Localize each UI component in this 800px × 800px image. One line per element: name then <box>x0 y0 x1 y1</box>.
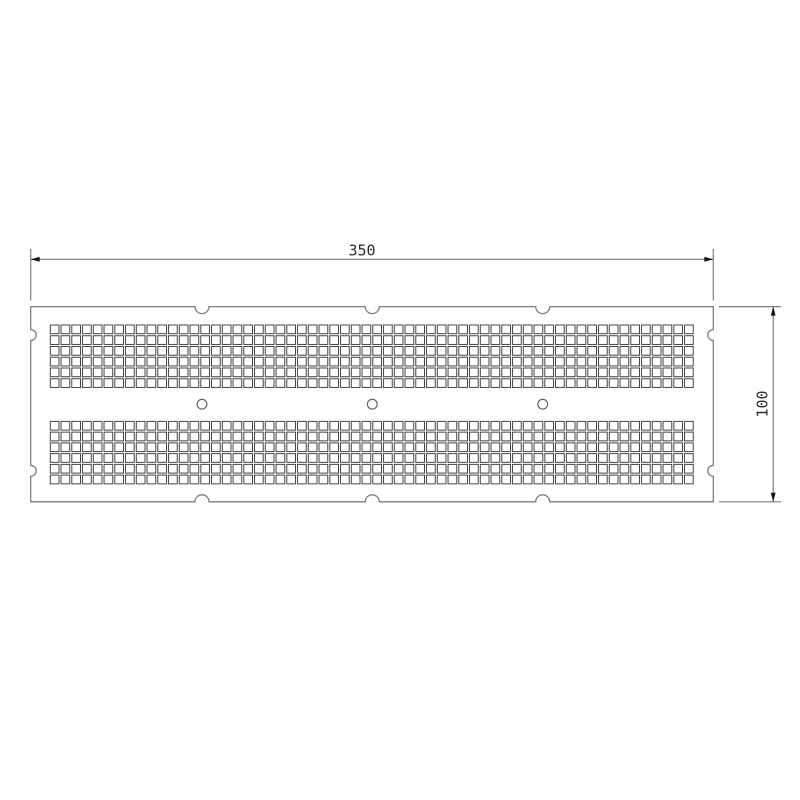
height-arrow-top <box>771 307 776 316</box>
height-arrow-bottom <box>771 493 776 502</box>
width-arrow-left <box>31 257 40 262</box>
mount-hole <box>538 399 548 409</box>
width-dimension-label: 350 <box>348 243 375 258</box>
mount-hole <box>367 399 377 409</box>
plate-technical-drawing <box>0 0 800 800</box>
width-arrow-right <box>704 257 713 262</box>
drawing-canvas: 350 100 <box>0 0 800 800</box>
mount-hole <box>197 399 207 409</box>
height-dimension-label: 100 <box>755 390 770 417</box>
